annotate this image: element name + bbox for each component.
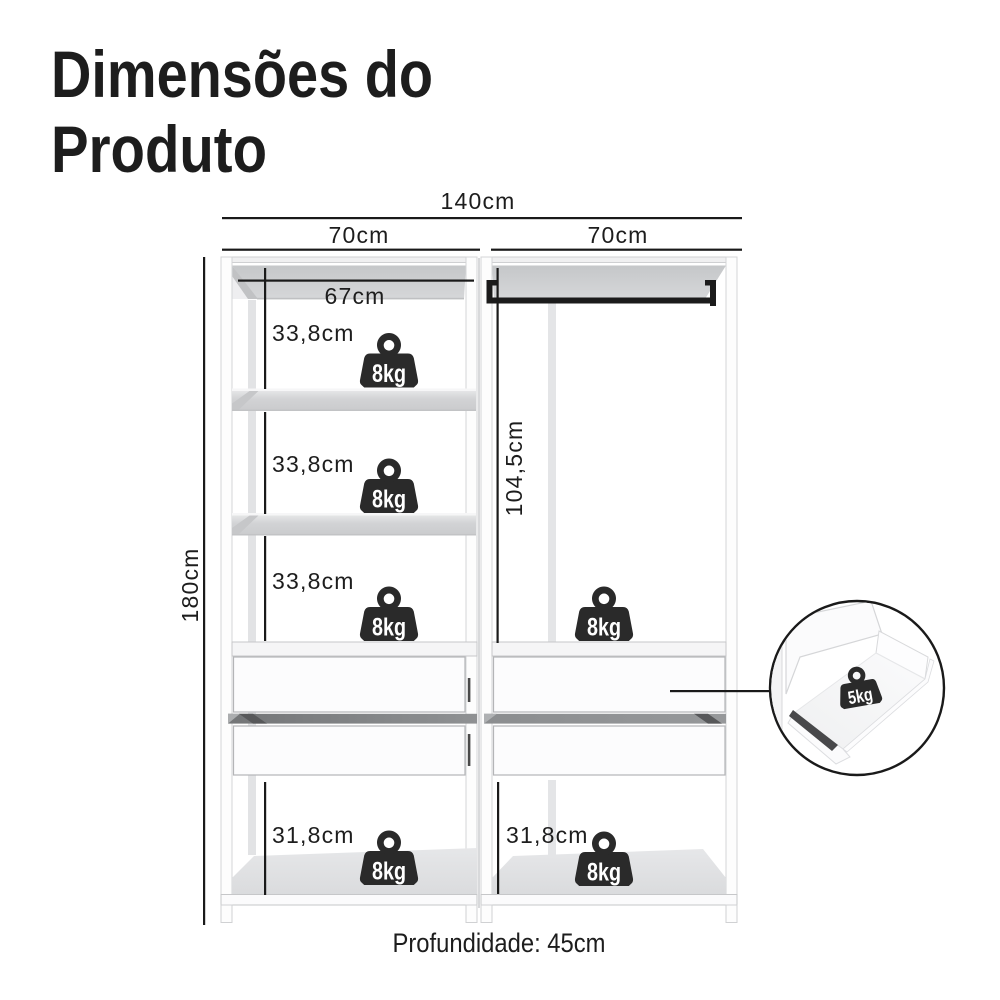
svg-text:104,5cm: 104,5cm [501, 420, 527, 517]
svg-text:70cm: 70cm [328, 222, 389, 248]
svg-text:33,8cm: 33,8cm [272, 451, 355, 477]
svg-text:Produto: Produto [51, 112, 267, 186]
svg-text:31,8cm: 31,8cm [506, 822, 589, 848]
svg-text:Profundidade: 45cm: Profundidade: 45cm [393, 928, 606, 958]
svg-text:31,8cm: 31,8cm [272, 822, 355, 848]
svg-text:70cm: 70cm [587, 222, 648, 248]
svg-text:140cm: 140cm [440, 188, 515, 214]
svg-text:180cm: 180cm [177, 547, 203, 622]
svg-text:33,8cm: 33,8cm [272, 320, 355, 346]
svg-text:67cm: 67cm [324, 283, 385, 309]
svg-text:33,8cm: 33,8cm [272, 568, 355, 594]
svg-text:Dimensões do: Dimensões do [51, 37, 433, 111]
